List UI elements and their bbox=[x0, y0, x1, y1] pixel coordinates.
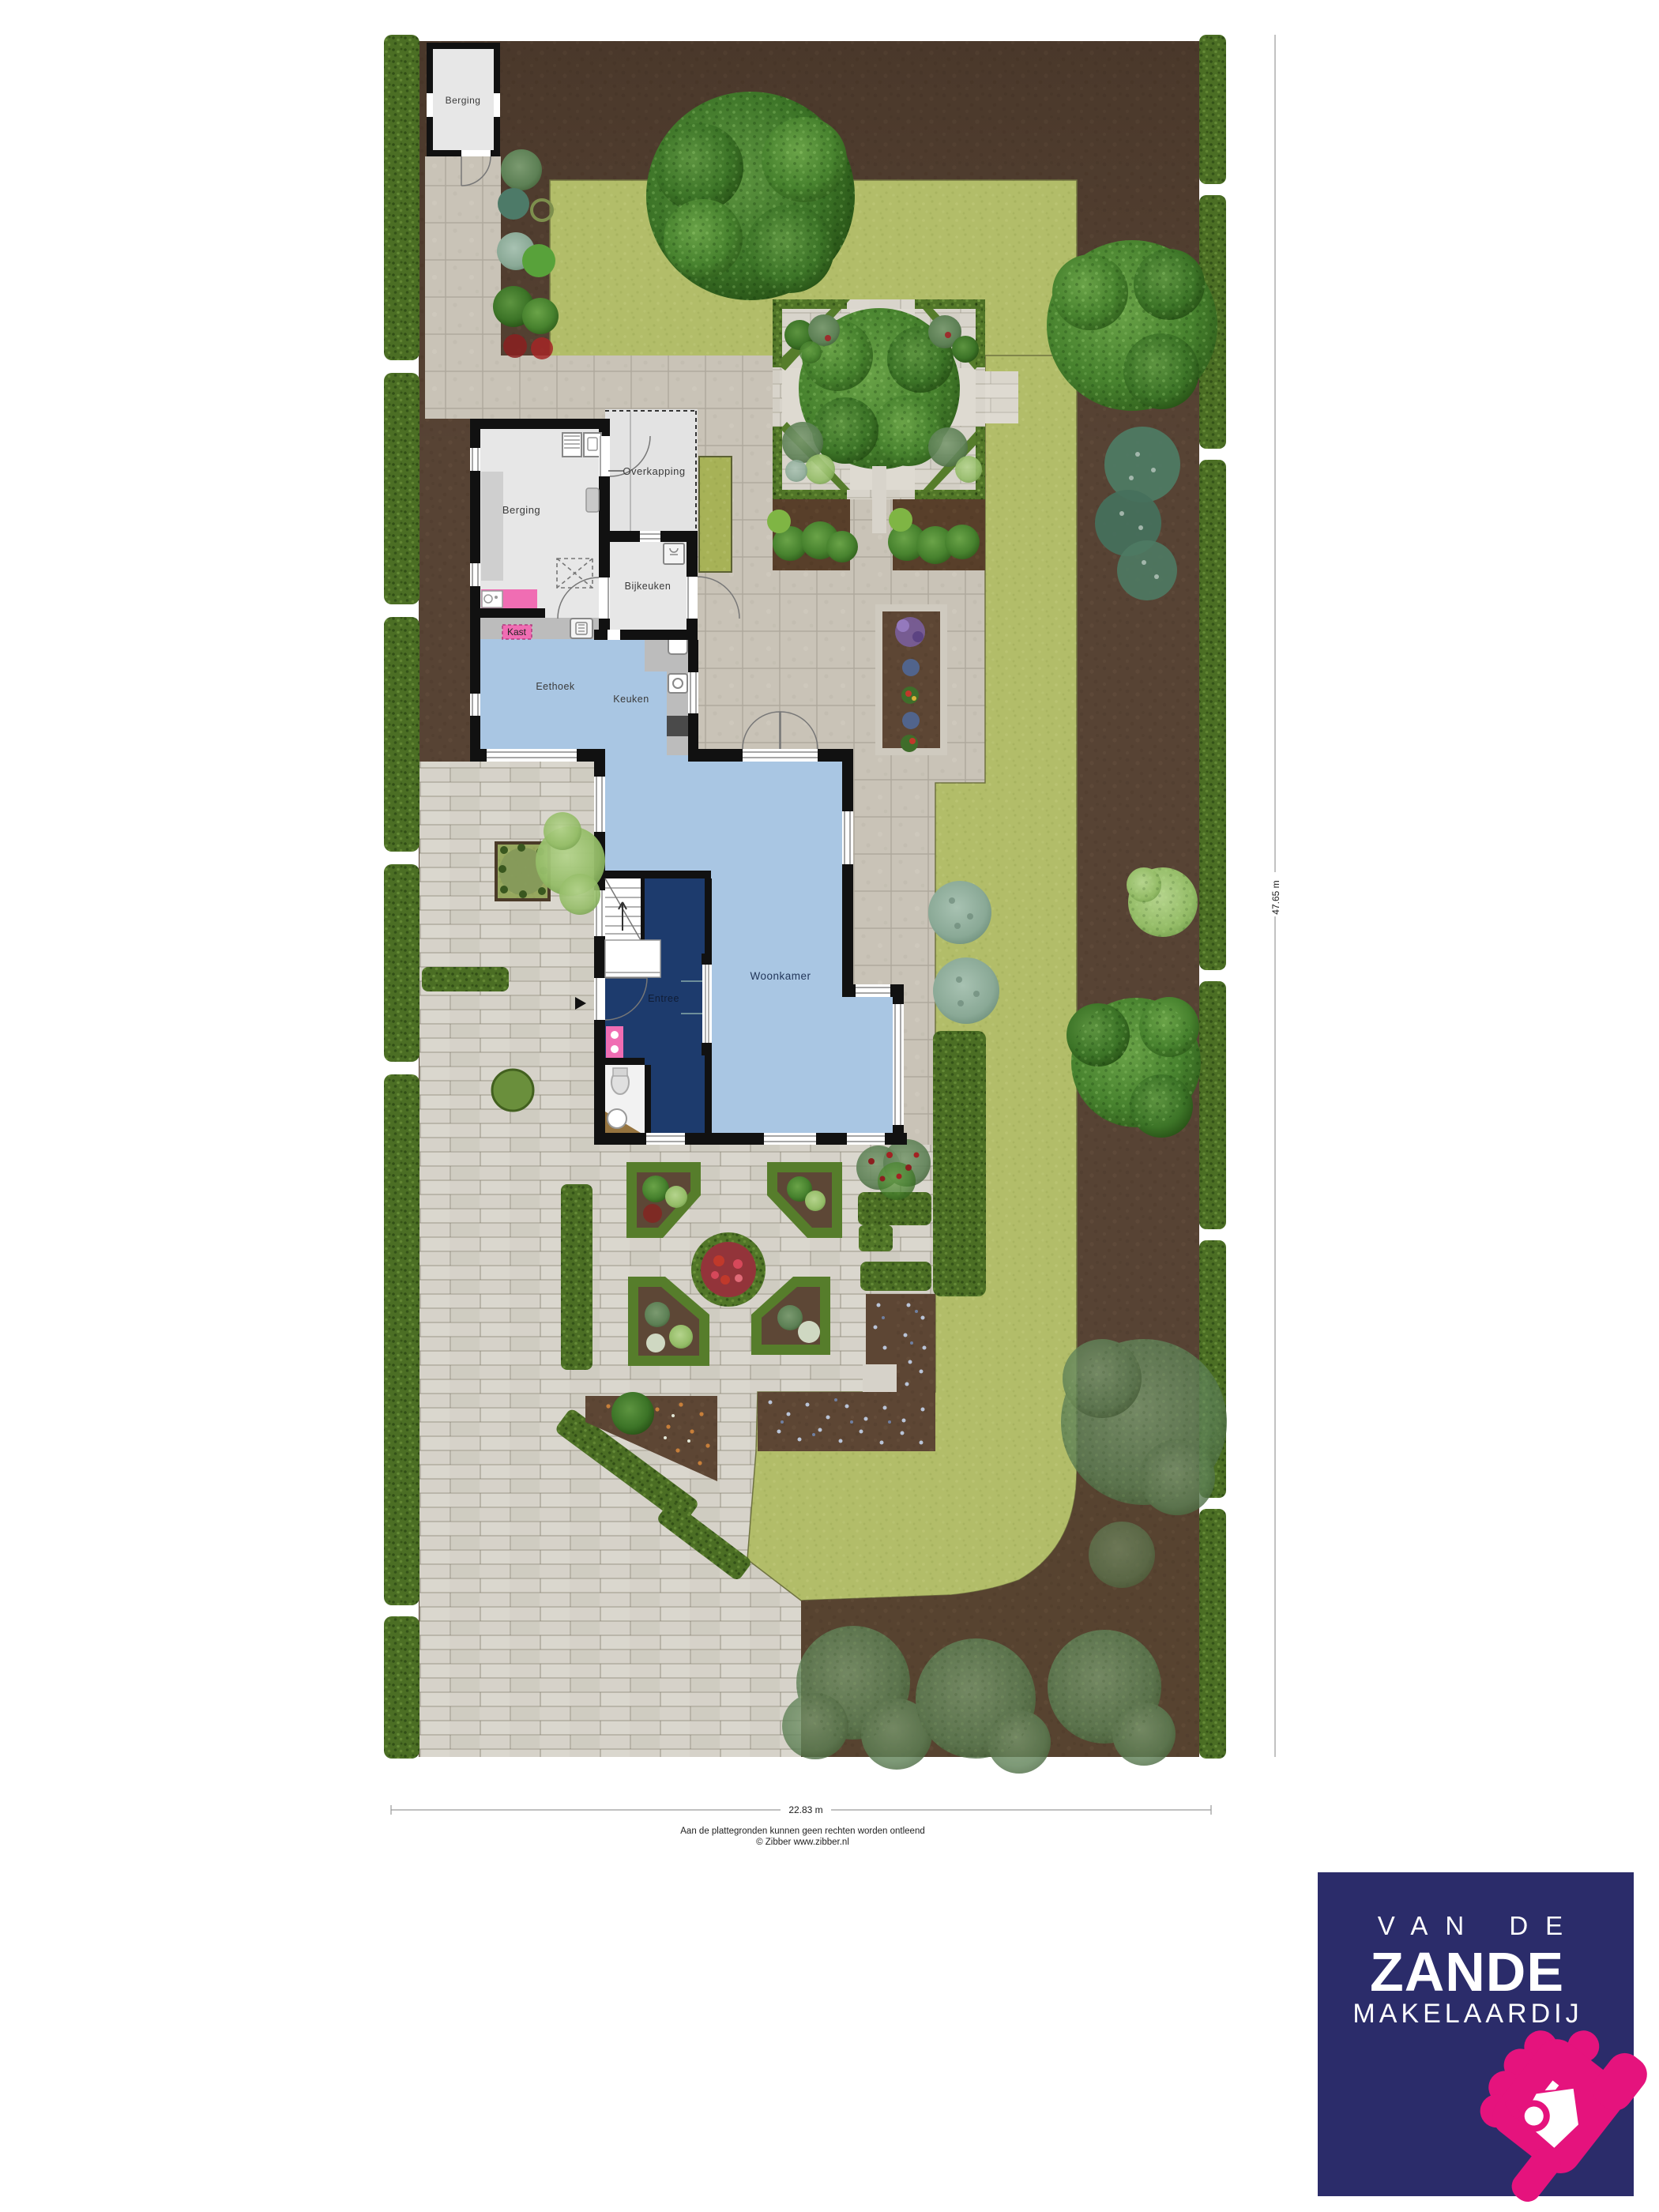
svg-text:Kast: Kast bbox=[507, 626, 527, 638]
svg-text:VAN DE: VAN DE bbox=[1378, 1911, 1580, 1940]
svg-text:Berging: Berging bbox=[502, 504, 540, 516]
svg-text:MAKELAARDIJ: MAKELAARDIJ bbox=[1352, 1999, 1582, 2029]
svg-text:Overkapping: Overkapping bbox=[623, 465, 685, 477]
svg-text:Bijkeuken: Bijkeuken bbox=[625, 581, 671, 592]
svg-text:Aan de plattegronden kunnen ge: Aan de plattegronden kunnen geen rechten… bbox=[680, 1826, 924, 1836]
svg-text:Berging: Berging bbox=[446, 95, 481, 106]
svg-text:Woonkamer: Woonkamer bbox=[750, 970, 811, 982]
svg-text:© Zibber www.zibber.nl: © Zibber www.zibber.nl bbox=[756, 1838, 849, 1847]
svg-text:Eethoek: Eethoek bbox=[536, 681, 575, 692]
svg-text:47.65 m: 47.65 m bbox=[1270, 880, 1281, 914]
svg-text:Keuken: Keuken bbox=[613, 694, 649, 705]
svg-text:ZANDE: ZANDE bbox=[1370, 1941, 1564, 2003]
svg-text:Entree: Entree bbox=[648, 993, 679, 1004]
svg-text:22.83 m: 22.83 m bbox=[788, 1804, 822, 1815]
